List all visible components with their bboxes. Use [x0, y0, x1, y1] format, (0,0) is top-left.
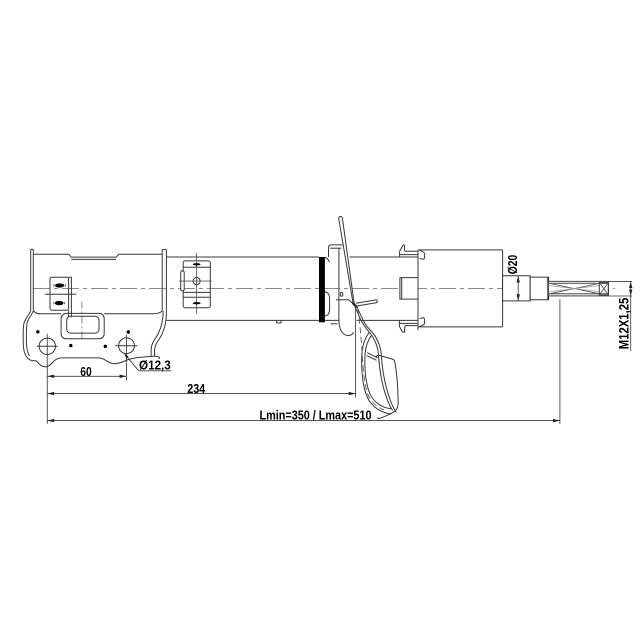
svg-text:Ø12,3: Ø12,3 — [139, 359, 171, 373]
svg-text:Ø20: Ø20 — [505, 255, 520, 275]
svg-text:Lmin=350 / Lmax=510: Lmin=350 / Lmax=510 — [260, 408, 372, 422]
svg-text:234: 234 — [187, 382, 205, 396]
svg-text:60: 60 — [80, 365, 92, 379]
svg-text:M12X1,25: M12X1,25 — [616, 298, 632, 350]
